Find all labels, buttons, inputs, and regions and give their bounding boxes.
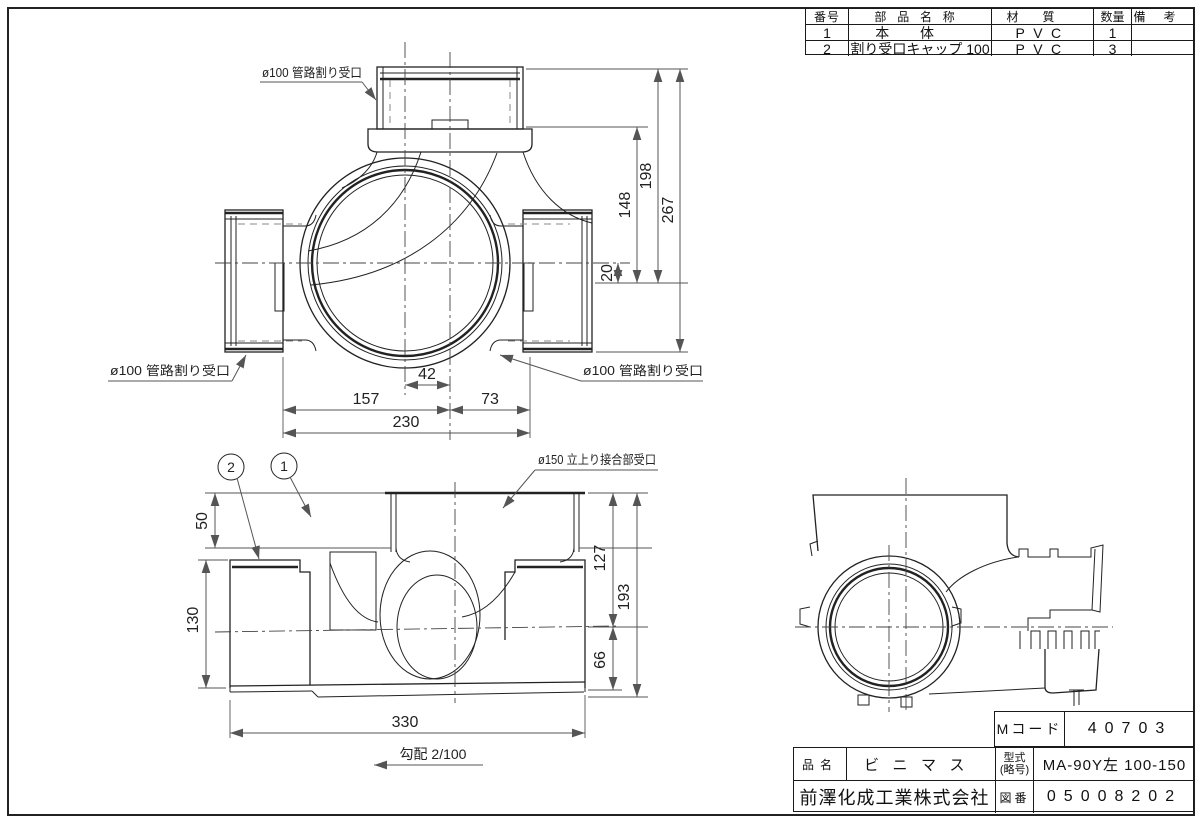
slope-note: 勾配 2/100 xyxy=(400,746,467,762)
mcode-value: 40703 xyxy=(1064,712,1195,746)
callout-riser-socket: ø150 立上り接合部受口 xyxy=(538,452,656,467)
parts-header-material: 材質 xyxy=(991,9,1093,24)
product-name-label: 品名 xyxy=(794,748,846,780)
sheet-border xyxy=(8,8,1194,815)
parts-header-remarks: 備考 xyxy=(1131,9,1195,24)
dim-50: 50 xyxy=(194,512,211,530)
parts-row2-remarks xyxy=(1131,40,1195,56)
parts-header-name: 部品名称 xyxy=(848,9,991,24)
parts-row1-material: PVC xyxy=(991,24,1093,40)
dim-330: 330 xyxy=(392,714,419,731)
drawing-canvas: 42 157 73 230 20 148 198 267 ø100 管路割り受口… xyxy=(0,0,1202,823)
dim-66: 66 xyxy=(592,651,609,669)
parts-row2-material: PVC xyxy=(991,40,1093,56)
mcode-label: Mコード xyxy=(995,712,1064,746)
callout-right-socket: ø100 管路割り受口 xyxy=(583,363,703,378)
plan-view: 42 157 73 230 20 148 198 267 ø100 管路割り受口… xyxy=(108,42,703,440)
product-name-value: ビニマス xyxy=(846,748,995,780)
parts-row1-qty: 1 xyxy=(1093,24,1131,40)
drawing-sheet: 42 157 73 230 20 148 198 267 ø100 管路割り受口… xyxy=(0,0,1202,823)
dim-148: 148 xyxy=(617,192,634,219)
dim-157: 157 xyxy=(353,391,380,408)
parts-row2-name: 割り受口キャップ 100 xyxy=(848,40,991,56)
side-view xyxy=(795,478,1113,714)
dim-42: 42 xyxy=(418,366,436,383)
drawing-no-value: 05008202 xyxy=(1033,780,1195,813)
company-name: 前澤化成工業株式会社 xyxy=(794,780,995,813)
callout-top-socket: ø100 管路割り受口 xyxy=(262,65,362,80)
drawing-no-label: 図番 xyxy=(995,780,1033,813)
parts-row2-no: 2 xyxy=(806,40,848,56)
balloon-1: 1 xyxy=(280,458,288,474)
callout-left-socket: ø100 管路割り受口 xyxy=(110,363,230,378)
dim-193: 193 xyxy=(616,584,633,611)
model-label-line2: (略号) xyxy=(1000,764,1029,776)
dim-127: 127 xyxy=(592,545,609,572)
model-label-line1: 型式 xyxy=(1004,752,1026,764)
dim-198: 198 xyxy=(638,163,655,190)
title-block: 品名 ビニマス 型式 (略号) MA-90Y左 100-150 前澤化成工業株式… xyxy=(793,747,1194,812)
model-value: MA-90Y左 100-150 xyxy=(1033,748,1195,780)
dim-20: 20 xyxy=(599,264,616,282)
dim-130: 130 xyxy=(185,607,202,634)
dim-230: 230 xyxy=(393,414,420,431)
parts-table: 番号 部品名称 材質 数量 備考 1 本体 PVC 1 2 割り受口キャップ 1… xyxy=(805,8,1194,55)
dim-73: 73 xyxy=(481,391,499,408)
dim-267: 267 xyxy=(660,197,677,224)
parts-row1-no: 1 xyxy=(806,24,848,40)
mcode-box: Mコード 40703 xyxy=(994,711,1194,747)
model-label: 型式 (略号) xyxy=(995,748,1033,780)
section-view: 50 130 127 66 193 330 勾配 2/100 ø150 立上り接… xyxy=(185,452,658,765)
parts-row1-remarks xyxy=(1131,24,1195,40)
parts-row2-qty: 3 xyxy=(1093,40,1131,56)
parts-header-qty: 数量 xyxy=(1093,9,1131,24)
balloon-2: 2 xyxy=(227,459,235,475)
parts-header-no: 番号 xyxy=(806,9,848,24)
parts-row1-name: 本体 xyxy=(848,24,991,40)
